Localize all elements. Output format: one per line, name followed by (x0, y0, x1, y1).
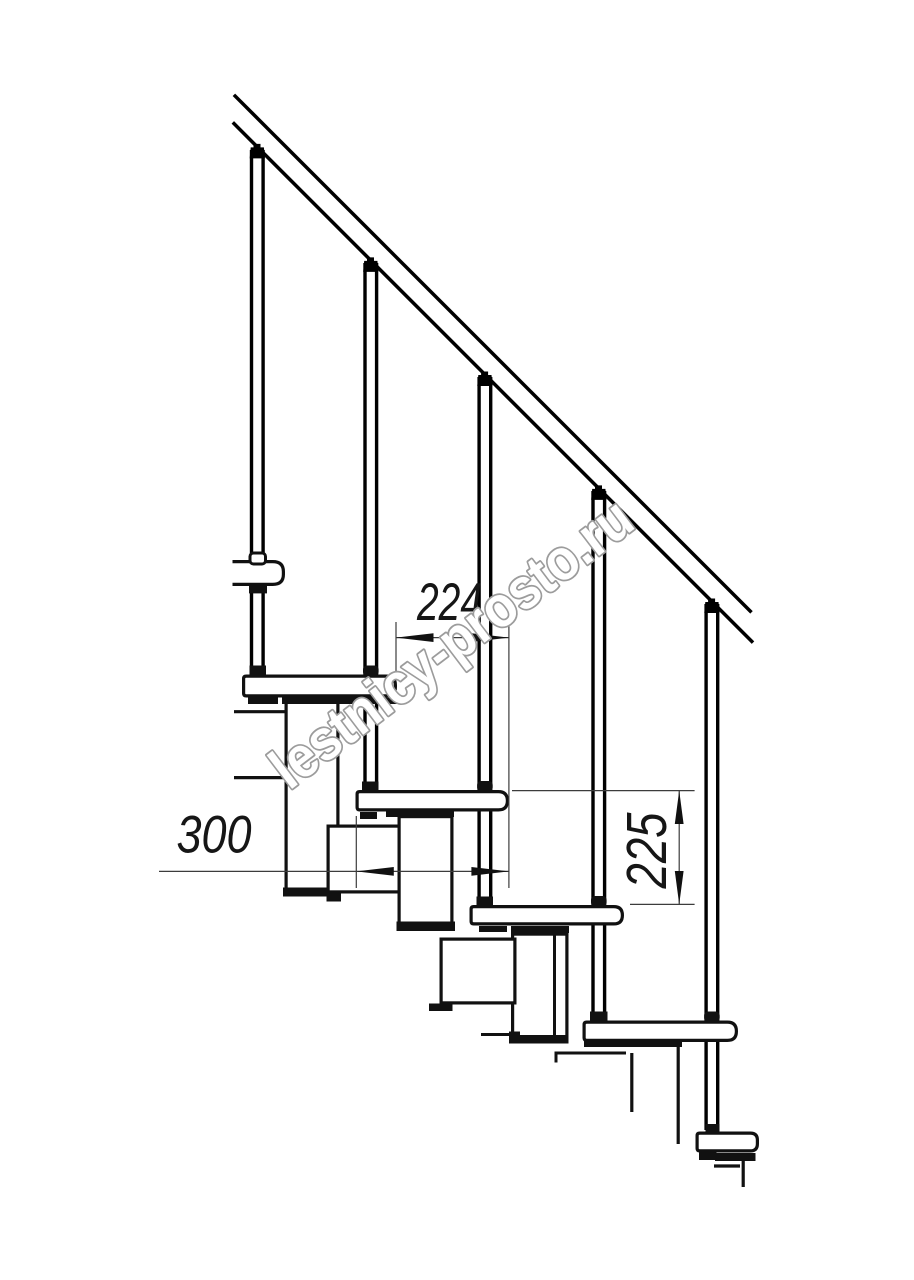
svg-text:300: 300 (177, 806, 252, 865)
svg-text:225: 225 (615, 812, 679, 889)
